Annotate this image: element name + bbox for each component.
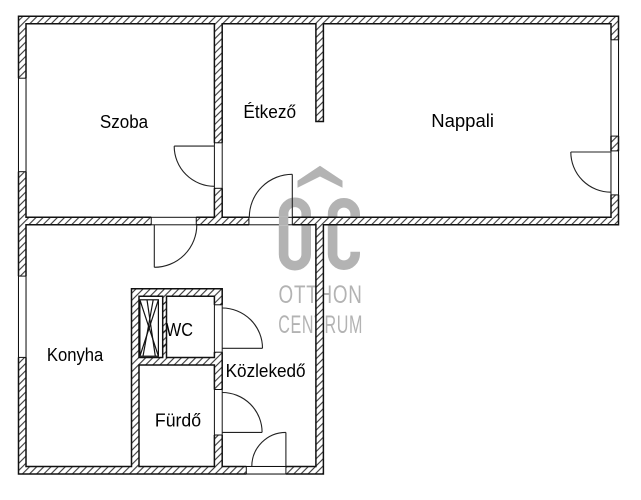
svg-text:Konyha: Konyha — [47, 344, 104, 365]
svg-text:Étkező: Étkező — [243, 101, 296, 122]
svg-text:Szoba: Szoba — [100, 112, 148, 133]
svg-text:WC: WC — [166, 319, 193, 340]
svg-text:Nappali: Nappali — [431, 110, 494, 131]
svg-text:Közlekedő: Közlekedő — [226, 360, 306, 381]
svg-text:Fürdő: Fürdő — [155, 410, 201, 430]
